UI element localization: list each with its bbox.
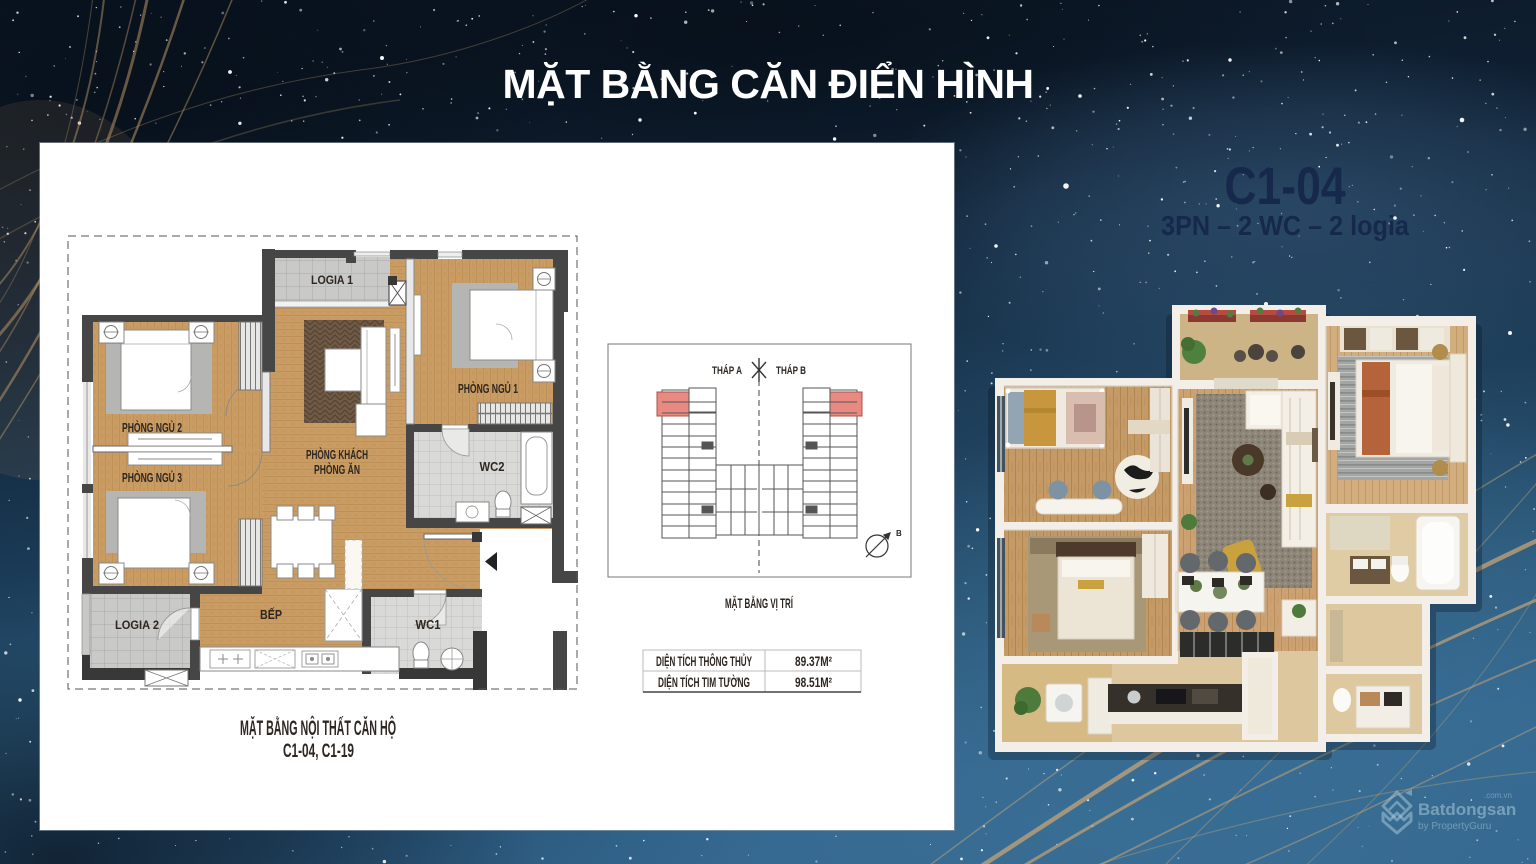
svg-text:Batdongsan: Batdongsan <box>1418 800 1516 819</box>
svg-text:by PropertyGuru: by PropertyGuru <box>1418 821 1491 832</box>
svg-text:.com.vn: .com.vn <box>1484 791 1512 800</box>
